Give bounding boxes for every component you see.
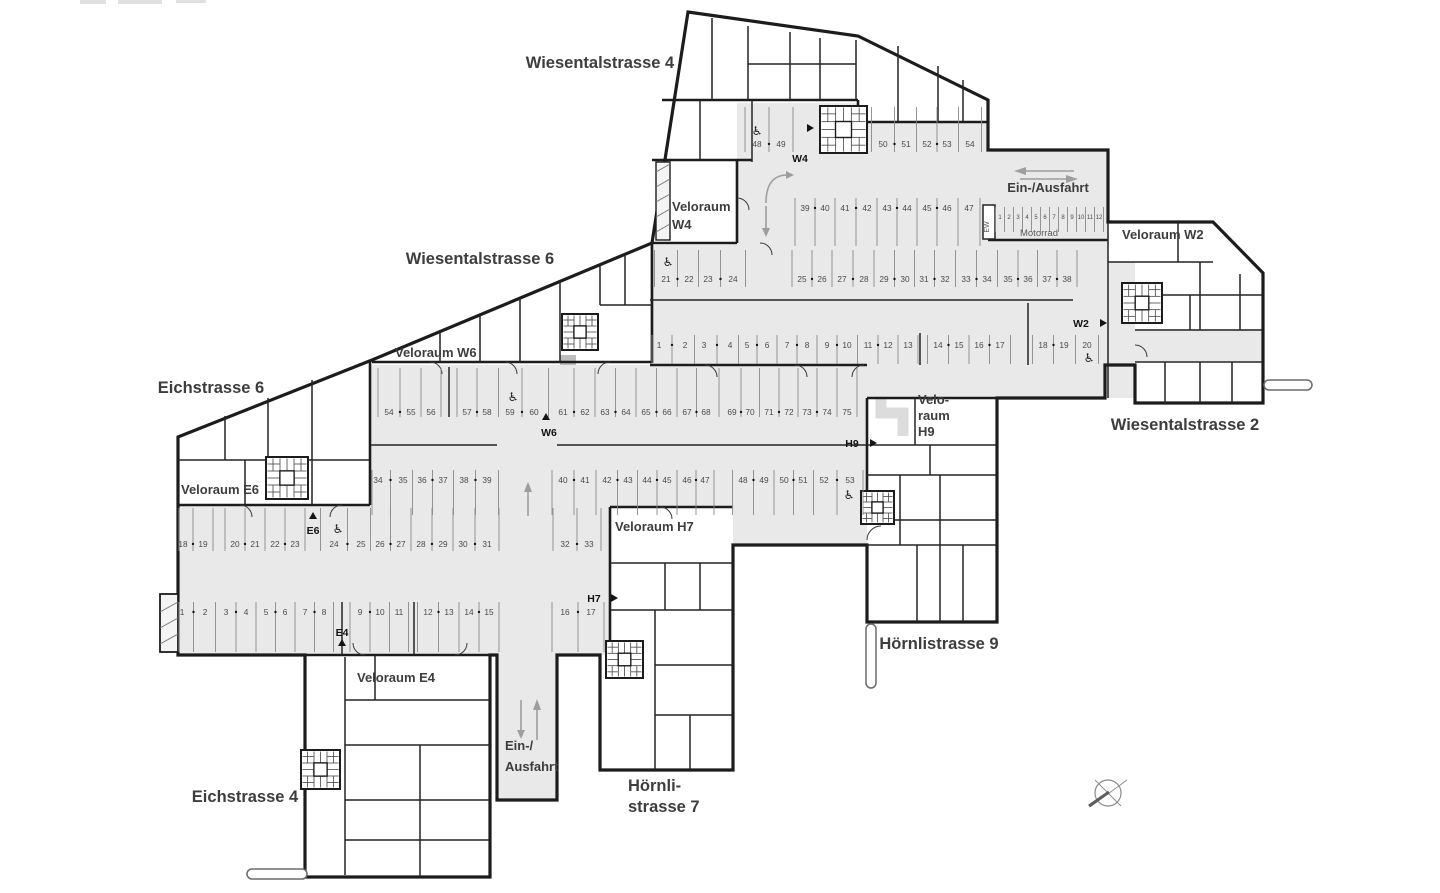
parking-stall-number: 13 (444, 607, 454, 617)
parking-stall-number: 23 (703, 274, 713, 284)
parking-stall-number: 24 (728, 274, 738, 284)
parking-stall-number: 23 (290, 539, 300, 549)
room-label: Veloraum E6 (181, 482, 259, 497)
door-dot (478, 611, 480, 613)
parking-stall-number: 20 (1082, 340, 1092, 350)
parking-stall-number: 29 (879, 274, 889, 284)
parking-stall-number: 66 (662, 407, 672, 417)
room-label: Veloraum H7 (615, 519, 694, 534)
door-dot (936, 143, 938, 145)
street-label: Wiesentalstrasse 2 (1111, 416, 1259, 434)
parking-stall-number: 45 (662, 475, 672, 485)
parking-stall-number: 54 (965, 139, 975, 149)
door-dot (896, 207, 898, 209)
parking-stall-number: 14 (933, 340, 943, 350)
shaft-gray (560, 355, 576, 365)
street-label: Eichstrasse 6 (158, 379, 264, 397)
parking-stall-number: 50 (779, 475, 789, 485)
door-dot (192, 543, 194, 545)
door-dot (235, 611, 237, 613)
accessible-icon: ♿ (752, 124, 763, 138)
flow-label: EW (984, 221, 991, 233)
parking-stall-number: 38 (1062, 274, 1072, 284)
entry-marker-label: W6 (541, 427, 557, 439)
parking-stall-number: 52 (819, 475, 829, 485)
door-dot (816, 411, 818, 413)
deck-w2-corridor-h (1108, 329, 1262, 361)
door-dot (836, 344, 838, 346)
street-label: Hörnli-strasse 7 (628, 777, 700, 816)
street-label: Eichstrasse 4 (192, 788, 299, 806)
parking-stall-number: 3 (224, 607, 229, 617)
parking-stall-number: 19 (198, 539, 208, 549)
accessible-icon: ♿ (1084, 351, 1095, 365)
parking-stall-number: 27 (837, 274, 847, 284)
door-dot (476, 411, 478, 413)
parking-stall-number: 4 (244, 607, 249, 617)
parking-stall-number: 32 (940, 274, 950, 284)
parking-stall-number: 48 (752, 139, 762, 149)
parking-stall-number: 49 (776, 139, 786, 149)
parking-stall-number: 46 (682, 475, 692, 485)
parking-stall-number: 7 (785, 340, 790, 350)
parking-stall-number: 53 (845, 475, 855, 485)
parking-stall-number: 70 (745, 407, 755, 417)
door-dot (431, 479, 433, 481)
parking-stall-number: 39 (482, 475, 492, 485)
parking-stall-number: 74 (822, 407, 832, 417)
parking-stall-number: 11 (864, 340, 873, 350)
door-dot (192, 611, 194, 613)
parking-stall-number: 68 (701, 407, 711, 417)
parking-stall-number: 44 (642, 475, 652, 485)
door-dot (836, 479, 838, 481)
door-dot (756, 344, 758, 346)
floor-plan: 4849505152535439404142434445464712345678… (0, 0, 1440, 893)
parking-stall-number: 18 (178, 539, 188, 549)
parking-stall-number: 21 (661, 274, 671, 284)
entry-marker-label: E4 (336, 627, 349, 639)
stairs-icon (1122, 283, 1162, 323)
door-dot (740, 411, 742, 413)
parking-stall-number: 8 (805, 340, 810, 350)
parking-stall-number: 49 (759, 475, 769, 485)
parking-stall-number: 39 (800, 203, 810, 213)
parking-stall-number: 52 (922, 139, 932, 149)
street-label: Hörnlistrasse 9 (879, 635, 998, 653)
door-dot (695, 479, 697, 481)
parking-stall-number: 36 (417, 475, 427, 485)
parking-stall-number: 33 (584, 539, 594, 549)
door-dot (577, 611, 579, 613)
parking-stall-number: 41 (840, 203, 850, 213)
parking-stall-number: 64 (621, 407, 631, 417)
parking-stall-number: 62 (580, 407, 590, 417)
parking-stall-number: 14 (464, 607, 474, 617)
parking-stall-number: 24 (329, 539, 339, 549)
door-dot (389, 543, 391, 545)
parking-stall-number: 44 (902, 203, 912, 213)
cropped-text-remnant (80, 0, 206, 4)
entry-marker-label: H7 (587, 593, 601, 605)
door-dot (1017, 278, 1019, 280)
flow-label: Ein-/Ausfahrt (1007, 180, 1089, 195)
parking-stall-number: 40 (558, 475, 568, 485)
parking-stall-number: 42 (602, 475, 612, 485)
door-dot (933, 278, 935, 280)
parking-stall-number: 67 (682, 407, 692, 417)
entry-marker-label: E6 (307, 525, 320, 537)
door-dot (474, 543, 476, 545)
pipe-east-icon (1264, 380, 1312, 390)
door-dot (437, 611, 439, 613)
door-dot (792, 479, 794, 481)
street-label: Wiesentalstrasse 4 (526, 54, 675, 72)
parking-stall-number: 37 (1042, 274, 1052, 284)
parking-stall-number: 20 (230, 539, 240, 549)
parking-stall-number: 35 (1003, 274, 1013, 284)
parking-stall-number: 71 (764, 407, 774, 417)
door-dot (778, 411, 780, 413)
parking-stall-number: 37 (438, 475, 448, 485)
parking-stall-number: 18 (1038, 340, 1048, 350)
door-dot (855, 207, 857, 209)
door-dot (1052, 344, 1054, 346)
room-label: Veloraum W6 (395, 345, 477, 360)
parking-stall-number: 22 (270, 539, 280, 549)
door-dot (1056, 278, 1058, 280)
parking-stall-number: 26 (817, 274, 827, 284)
door-dot (573, 411, 575, 413)
door-dot (389, 479, 391, 481)
parking-stall-number: 33 (961, 274, 971, 284)
parking-stall-number: 1 (180, 607, 185, 617)
parking-stall-number: 19 (1059, 340, 1069, 350)
parking-stall-number: 28 (416, 539, 426, 549)
street-label: Wiesentalstrasse 6 (406, 250, 554, 268)
stairs-icon (820, 106, 867, 153)
door-dot (671, 344, 673, 346)
parking-stall-number: 34 (982, 274, 992, 284)
door-dot (947, 344, 949, 346)
parking-stall-number: 30 (900, 274, 910, 284)
parking-stall-number: 43 (882, 203, 892, 213)
door-dot (975, 278, 977, 280)
flow-label: Motorrad (1020, 228, 1058, 239)
stairs-icon (562, 314, 598, 350)
parking-stall-number: 47 (964, 203, 974, 213)
parking-stall-number: 13 (903, 340, 913, 350)
hatch-shaft-left (160, 594, 178, 652)
parking-stall-number: 9 (358, 607, 363, 617)
door-dot (399, 411, 401, 413)
parking-stall-number: 11 (1087, 215, 1094, 221)
parking-stall-number: 56 (426, 407, 436, 417)
parking-stall-number: 27 (396, 539, 406, 549)
door-dot (695, 411, 697, 413)
parking-stall-number: 30 (458, 539, 468, 549)
parking-stall-number: 10 (1078, 215, 1085, 221)
parking-stall-number: 38 (459, 475, 469, 485)
parking-stall-number: 5 (745, 340, 750, 350)
parking-stall-number: 36 (1023, 274, 1033, 284)
parking-stall-number: 35 (398, 475, 408, 485)
parking-stall-number: 10 (375, 607, 385, 617)
parking-stall-number: 41 (580, 475, 590, 485)
accessible-icon: ♿ (333, 522, 344, 536)
parking-stall-number: 6 (283, 607, 288, 617)
parking-stall-number: 12 (423, 607, 433, 617)
parking-stall-number: 10 (842, 340, 852, 350)
pipe-e4-icon (247, 869, 307, 879)
parking-stall-number: 11 (395, 607, 404, 617)
parking-stall-number: 5 (264, 607, 269, 617)
parking-stall-number: 17 (586, 607, 596, 617)
door-dot (313, 611, 315, 613)
parking-stall-number: 25 (797, 274, 807, 284)
parking-stall-number: 43 (623, 475, 633, 485)
parking-stall-number: 69 (727, 407, 737, 417)
door-dot (369, 611, 371, 613)
parking-stall-number: 16 (974, 340, 984, 350)
parking-stall-number: 75 (842, 407, 852, 417)
parking-stall-number: 45 (922, 203, 932, 213)
parking-stall-number: 65 (641, 407, 651, 417)
hatch-ramp-w4 (656, 162, 670, 240)
parking-stall-number: 25 (356, 539, 366, 549)
parking-stall-number: 61 (558, 407, 568, 417)
entry-marker-label: W4 (792, 153, 808, 165)
door-dot (284, 543, 286, 545)
door-dot (768, 143, 770, 145)
parking-stall-number: 60 (529, 407, 539, 417)
compass-icon (1089, 780, 1127, 807)
accessible-icon: ♿ (663, 255, 674, 269)
parking-stall-number: 73 (802, 407, 812, 417)
door-dot (521, 411, 523, 413)
entry-marker-label: W2 (1073, 318, 1089, 330)
parking-stall-number: 72 (784, 407, 794, 417)
parking-stall-number: 48 (738, 475, 748, 485)
accessible-icon: ♿ (508, 390, 519, 404)
door-dot (811, 278, 813, 280)
door-dot (474, 479, 476, 481)
parking-stall-number: 57 (462, 407, 472, 417)
stairs-icon (606, 641, 643, 678)
parking-stall-number: 32 (560, 539, 570, 549)
stairs-icon (266, 457, 308, 499)
parking-stall-number: 1 (657, 340, 662, 350)
parking-stall-number: 8 (322, 607, 327, 617)
parking-stall-number: 29 (438, 539, 448, 549)
door-dot (655, 411, 657, 413)
parking-stall-number: 51 (798, 475, 808, 485)
parking-stall-number: 40 (820, 203, 830, 213)
parking-stall-number: 59 (505, 407, 515, 417)
parking-stall-number: 26 (375, 539, 385, 549)
door-dot (852, 278, 854, 280)
door-dot (616, 479, 618, 481)
door-dot (752, 479, 754, 481)
parking-stall-number: 58 (482, 407, 492, 417)
stairs-icon (301, 750, 340, 789)
parking-stall-number: 42 (862, 203, 872, 213)
door-dot (274, 611, 276, 613)
parking-stall-number: 3 (702, 340, 707, 350)
parking-stall-number: 22 (684, 274, 694, 284)
parking-stall-number: 55 (406, 407, 416, 417)
parking-stall-number: 2 (683, 340, 688, 350)
parking-stall-number: 12 (883, 340, 893, 350)
parking-stall-number: 31 (482, 539, 492, 549)
stairs-icon (861, 491, 894, 524)
door-dot (877, 344, 879, 346)
entry-marker-label: H9 (845, 438, 859, 450)
parking-stall-number: 7 (303, 607, 308, 617)
parking-stall-number: 6 (765, 340, 770, 350)
door-dot (614, 411, 616, 413)
parking-stall-number: 16 (560, 607, 570, 617)
door-dot (936, 207, 938, 209)
parking-stall-number: 53 (942, 139, 952, 149)
door-dot (576, 543, 578, 545)
door-dot (716, 344, 718, 346)
parking-stall-number: 21 (250, 539, 260, 549)
door-dot (431, 543, 433, 545)
door-dot (814, 207, 816, 209)
parking-stall-number: 17 (995, 340, 1005, 350)
parking-stall-number: 15 (484, 607, 494, 617)
door-dot (988, 344, 990, 346)
door-dot (244, 543, 246, 545)
door-dot (893, 143, 895, 145)
parking-stall-number: 46 (942, 203, 952, 213)
room-label: Veloraum E4 (357, 670, 436, 685)
parking-stall-number: 34 (373, 475, 383, 485)
parking-stall-number: 50 (878, 139, 888, 149)
parking-stall-number: 4 (728, 340, 733, 350)
door-dot (796, 344, 798, 346)
parking-stall-number: 54 (384, 407, 394, 417)
door-dot (656, 479, 658, 481)
parking-stall-number: 51 (901, 139, 911, 149)
door-dot (719, 278, 721, 280)
door-dot (346, 543, 348, 545)
door-dot (893, 278, 895, 280)
parking-stall-number: 9 (825, 340, 830, 350)
floor-plan-page: 4849505152535439404142434445464712345678… (0, 0, 1440, 893)
parking-stall-number: 63 (600, 407, 610, 417)
parking-stall-number: 12 (1096, 215, 1103, 221)
parking-stall-number: 31 (919, 274, 929, 284)
room-label: Veloraum W2 (1122, 227, 1204, 242)
parking-stall-number: 28 (859, 274, 869, 284)
door-dot (573, 479, 575, 481)
parking-stall-number: 2 (203, 607, 208, 617)
parking-stall-number: 15 (954, 340, 964, 350)
accessible-icon: ♿ (844, 488, 855, 502)
parking-stall-number: 47 (700, 475, 710, 485)
pipe-h9-icon (866, 624, 876, 688)
door-dot (676, 278, 678, 280)
